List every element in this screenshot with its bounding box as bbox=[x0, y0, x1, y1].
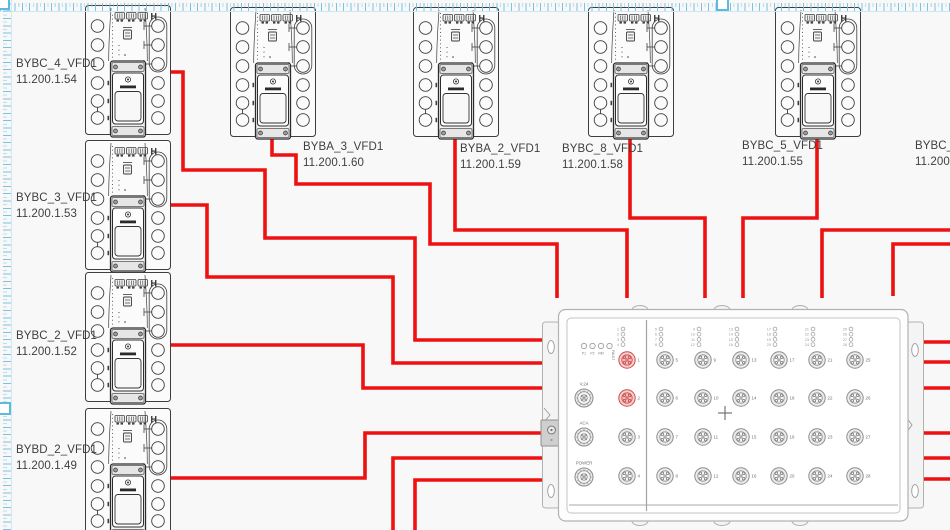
device-label-BYBD_2_VFD1[interactable]: BYBD_2_VFD111.200.1.49 bbox=[16, 442, 97, 474]
device-ip: 11.200.1.54 bbox=[16, 72, 97, 88]
svg-text:25: 25 bbox=[866, 358, 871, 363]
svg-text:H: H bbox=[654, 14, 661, 24]
cable-offscreen-right-2-to-switch-top-6[interactable] bbox=[893, 244, 950, 296]
svg-text:3: 3 bbox=[617, 338, 619, 342]
device-ip: 11.200.1.58 bbox=[562, 157, 643, 173]
device-name: BYBC_4_VFD1 bbox=[16, 56, 97, 72]
svg-text:28: 28 bbox=[866, 474, 871, 479]
vfd-device-BYBA_2_VFD1[interactable]: H bbox=[414, 8, 499, 140]
svg-text:18: 18 bbox=[790, 396, 795, 401]
svg-text:19: 19 bbox=[790, 435, 795, 440]
svg-text:19: 19 bbox=[767, 338, 771, 342]
svg-text:26: 26 bbox=[866, 396, 871, 401]
svg-text:14: 14 bbox=[729, 333, 733, 337]
device-name: BYBC_5_VFD1 bbox=[742, 138, 823, 154]
device-label-BYBC_4_VFD1[interactable]: BYBC_4_VFD111.200.1.54 bbox=[16, 56, 97, 88]
svg-text:10: 10 bbox=[691, 333, 695, 337]
svg-text:2: 2 bbox=[617, 333, 619, 337]
svg-text:FAULT: FAULT bbox=[611, 350, 615, 360]
device-name: BYBA_2_VFD1 bbox=[460, 141, 540, 157]
svg-text:8: 8 bbox=[655, 343, 657, 347]
device-name: BYBD_2_VFD1 bbox=[16, 442, 97, 458]
svg-text:15: 15 bbox=[729, 338, 733, 342]
vfd-device-BYBC_5_VFD1[interactable]: H bbox=[776, 8, 861, 140]
cable-offscreen-bottom-2-to-switch-left-6[interactable] bbox=[415, 480, 543, 530]
cable-BYBD_2_VFD1-to-switch-left-4[interactable] bbox=[171, 433, 543, 478]
svg-text:5: 5 bbox=[655, 327, 657, 331]
svg-text:H: H bbox=[151, 415, 158, 425]
diagram-scene: HHHHHHHHP1P2RMFAULT123412345678567891011… bbox=[0, 0, 950, 530]
svg-text:21: 21 bbox=[805, 327, 809, 331]
svg-text:22: 22 bbox=[805, 333, 809, 337]
svg-text:11: 11 bbox=[714, 435, 719, 440]
selection-handle-top-left[interactable] bbox=[0, 0, 10, 10]
svg-text:H: H bbox=[151, 279, 158, 289]
vfd-device-BYBC_3_VFD1[interactable]: H bbox=[86, 141, 171, 273]
svg-text:12: 12 bbox=[691, 343, 695, 347]
device-ip: 11.200.1.52 bbox=[16, 344, 97, 360]
device-name: BYBA_3_VFD1 bbox=[303, 139, 383, 155]
svg-text:13: 13 bbox=[752, 358, 757, 363]
svg-text:P2: P2 bbox=[590, 352, 594, 356]
device-label-BYBC_8_VFD1[interactable]: BYBC_8_VFD111.200.1.58 bbox=[562, 141, 643, 173]
svg-text:P1: P1 bbox=[582, 352, 586, 356]
svg-text:16: 16 bbox=[729, 343, 733, 347]
cable-offscreen-right-1-to-switch-top-5[interactable] bbox=[822, 230, 950, 298]
ethernet-switch[interactable]: P1P2RMFAULT12341234567856789101112910111… bbox=[541, 306, 924, 526]
svg-text:14: 14 bbox=[752, 396, 757, 401]
svg-text:9: 9 bbox=[693, 327, 695, 331]
device-ip: 11.200.1.55 bbox=[742, 154, 823, 170]
vfd-device-BYBD_2_VFD1[interactable]: H bbox=[86, 409, 171, 530]
svg-text:13: 13 bbox=[729, 327, 733, 331]
device-label-BYBC_2_VFD1[interactable]: BYBC_2_VFD111.200.1.52 bbox=[16, 328, 97, 360]
vfd-device-BYBC_8_VFD1[interactable]: H bbox=[589, 8, 674, 140]
device-label-BYBC_3_VFD1[interactable]: BYBC_3_VFD111.200.1.53 bbox=[16, 190, 97, 222]
svg-text:15: 15 bbox=[752, 435, 757, 440]
device-name: BYBC_3_VFD1 bbox=[16, 190, 97, 206]
device-ip: 11.200.1.60 bbox=[303, 155, 383, 171]
device-name: BYBC_2_VFD1 bbox=[16, 328, 97, 344]
device-name: BYBC_6_ bbox=[915, 138, 950, 154]
svg-text:22: 22 bbox=[828, 396, 833, 401]
device-label-BYBC_5_VFD1[interactable]: BYBC_5_VFD111.200.1.55 bbox=[742, 138, 823, 170]
svg-text:RM: RM bbox=[598, 352, 603, 356]
svg-text:28: 28 bbox=[843, 343, 847, 347]
svg-text:6: 6 bbox=[655, 333, 657, 337]
svg-text:1: 1 bbox=[617, 327, 619, 331]
svg-text:POWER: POWER bbox=[576, 461, 593, 466]
svg-text:H: H bbox=[151, 12, 158, 22]
svg-text:23: 23 bbox=[805, 338, 809, 342]
svg-text:20: 20 bbox=[790, 474, 795, 479]
svg-text:24: 24 bbox=[828, 474, 833, 479]
device-label-BYBA_3_VFD1[interactable]: BYBA_3_VFD111.200.1.60 bbox=[303, 139, 383, 171]
svg-text:10: 10 bbox=[714, 396, 719, 401]
svg-text:ACA: ACA bbox=[579, 421, 588, 426]
device-ip: 11.200.1.53 bbox=[16, 206, 97, 222]
svg-text:7: 7 bbox=[655, 338, 657, 342]
svg-text:17: 17 bbox=[790, 358, 795, 363]
device-name: BYBC_8_VFD1 bbox=[562, 141, 643, 157]
device-ip: 11.200.1.49 bbox=[16, 458, 97, 474]
cable-BYBC_2_VFD1-to-switch-left-3[interactable] bbox=[171, 345, 543, 388]
device-label-BYBA_2_VFD1[interactable]: BYBA_2_VFD111.200.1.59 bbox=[460, 141, 540, 173]
svg-text:24: 24 bbox=[805, 343, 809, 347]
svg-text:H: H bbox=[479, 14, 486, 24]
svg-text:H: H bbox=[151, 147, 158, 157]
svg-text:4: 4 bbox=[617, 343, 619, 347]
svg-text:21: 21 bbox=[828, 358, 833, 363]
svg-text:27: 27 bbox=[866, 435, 871, 440]
svg-text:V.24: V.24 bbox=[580, 382, 589, 387]
vfd-device-BYBC_2_VFD1[interactable]: H bbox=[86, 273, 171, 405]
svg-text:H: H bbox=[296, 14, 303, 24]
switch-side-port-POWER[interactable]: POWER bbox=[575, 461, 593, 487]
svg-text:25: 25 bbox=[843, 327, 847, 331]
svg-text:27: 27 bbox=[843, 338, 847, 342]
device-ip: 11.200.1.59 bbox=[460, 157, 540, 173]
svg-text:23: 23 bbox=[828, 435, 833, 440]
selection-handle-top-center[interactable] bbox=[716, 0, 729, 11]
svg-text:18: 18 bbox=[767, 333, 771, 337]
svg-text:11: 11 bbox=[691, 338, 695, 342]
diagram-canvas: HHHHHHHHP1P2RMFAULT123412345678567891011… bbox=[0, 0, 950, 530]
svg-text:H: H bbox=[841, 14, 848, 24]
svg-text:20: 20 bbox=[767, 343, 771, 347]
svg-text:26: 26 bbox=[843, 333, 847, 337]
device-ip: 11.200.1 bbox=[915, 154, 950, 170]
vfd-device-BYBC_4_VFD1[interactable]: H bbox=[86, 6, 171, 138]
device-label-BYBC_6_[interactable]: BYBC_6_11.200.1 bbox=[915, 138, 950, 170]
vfd-device-BYBA_3_VFD1[interactable]: H bbox=[231, 8, 316, 140]
selection-handle-left-center[interactable] bbox=[0, 402, 11, 415]
svg-text:16: 16 bbox=[752, 474, 757, 479]
svg-text:12: 12 bbox=[714, 474, 719, 479]
svg-text:17: 17 bbox=[767, 327, 771, 331]
